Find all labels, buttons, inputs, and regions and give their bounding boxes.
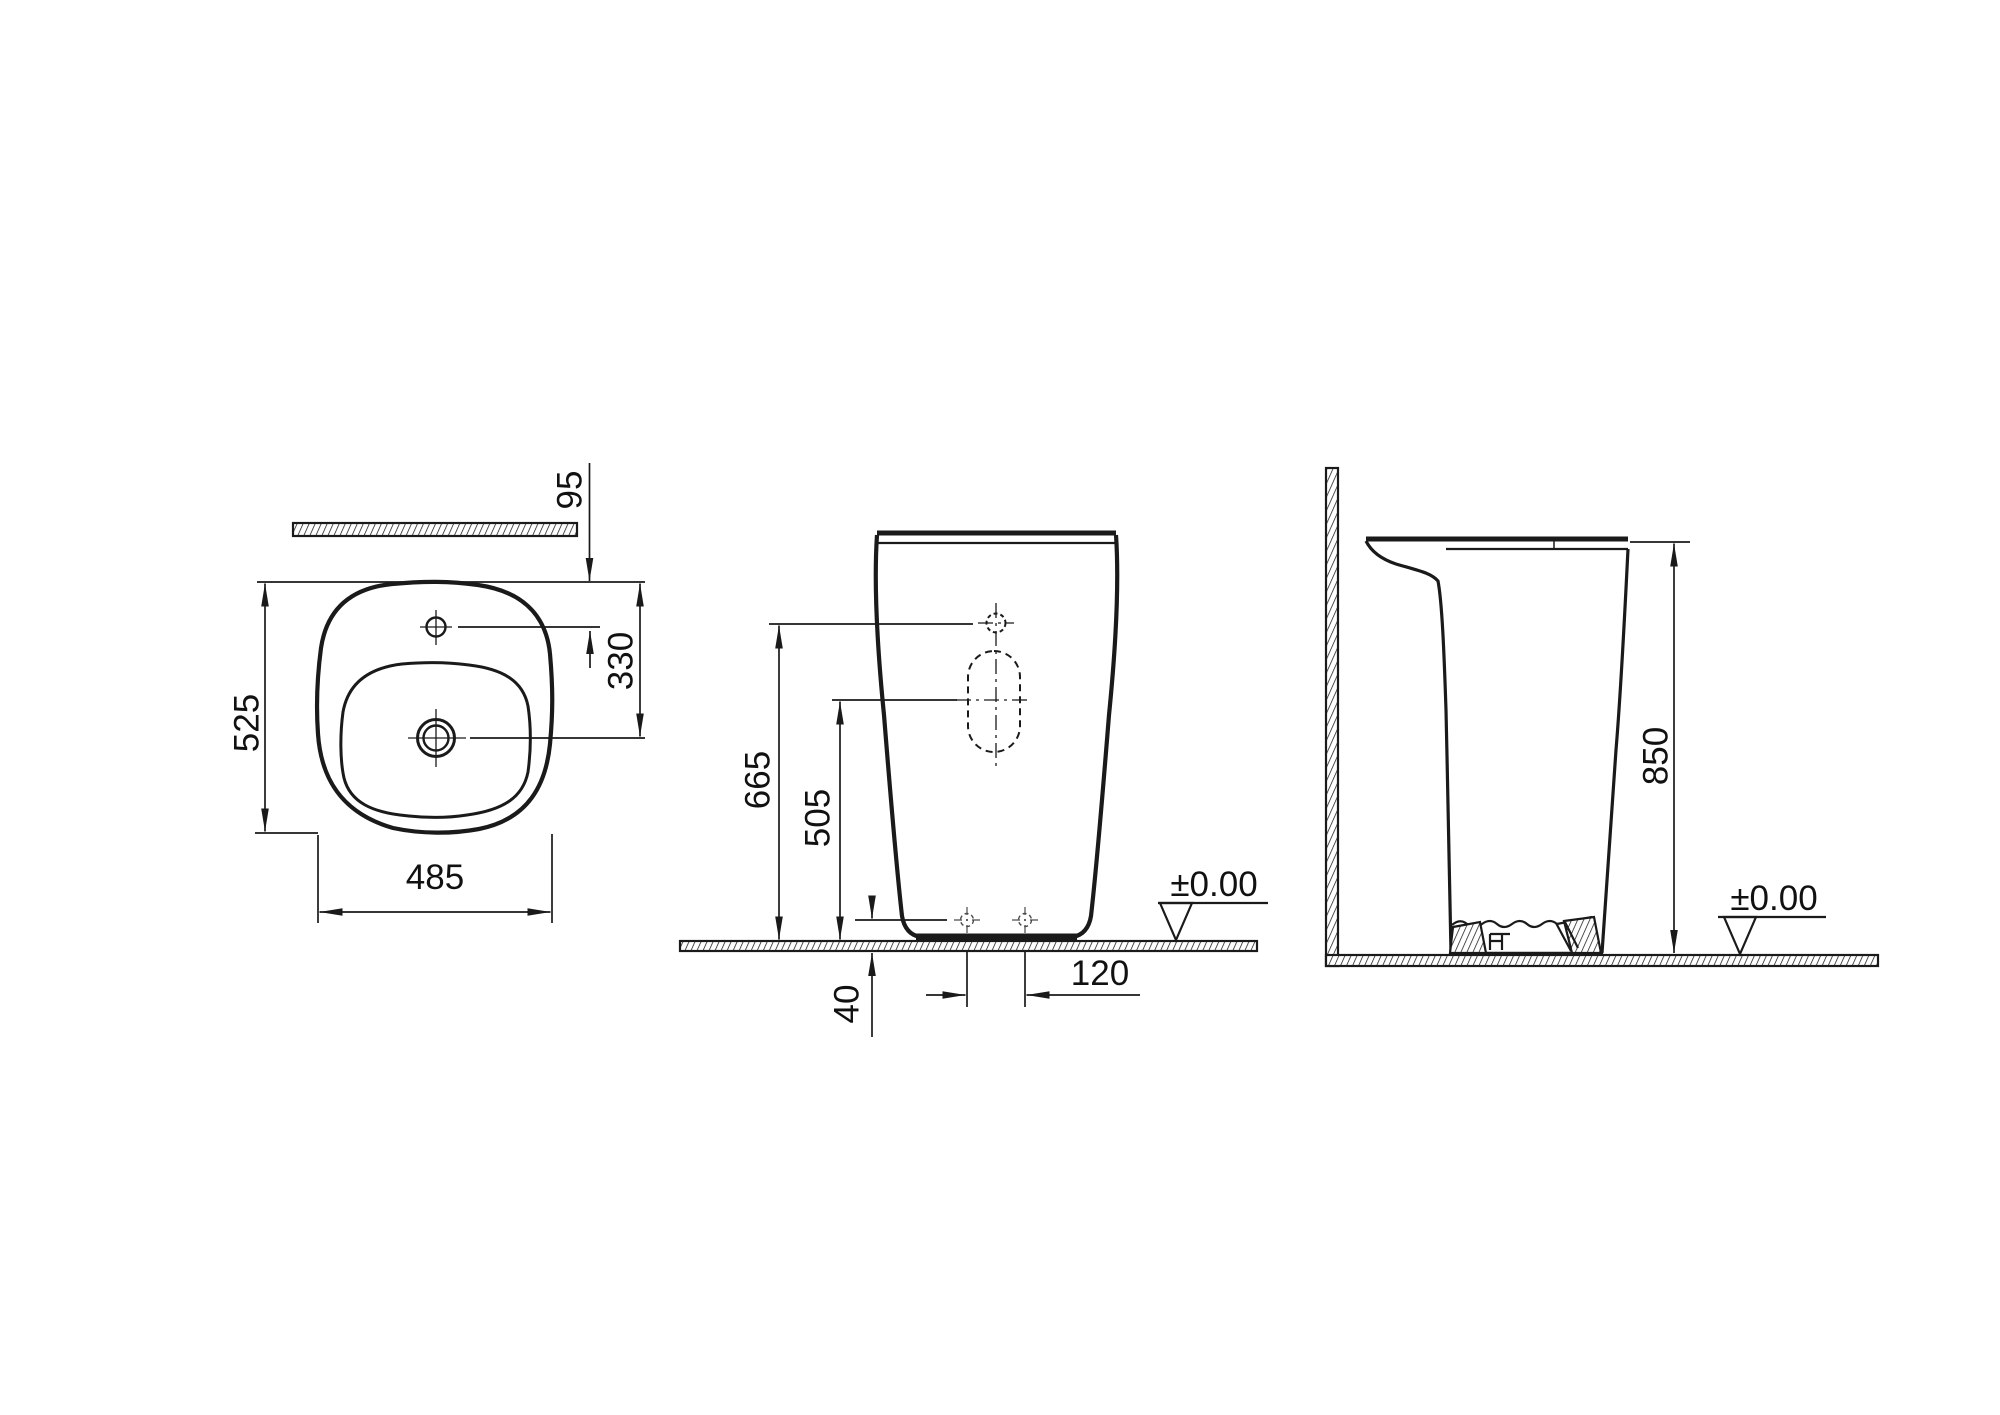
- fixing-hole-mark-left: [954, 907, 980, 933]
- front-datum-label: ±0.00: [1170, 865, 1257, 904]
- dim-overall-depth: 525: [227, 584, 318, 834]
- dim-label-525: 525: [227, 694, 266, 752]
- side-wall-section: [1326, 468, 1338, 966]
- side-datum-level: ±0.00: [1718, 879, 1826, 954]
- dim-overall-width: 485: [318, 834, 552, 923]
- side-base-section-detail: [1450, 917, 1601, 953]
- side-elevation: 850 ±0.00: [1326, 468, 1878, 966]
- front-datum-level: ±0.00: [1158, 865, 1268, 940]
- dim-tap-height: 665: [738, 624, 973, 940]
- dim-label-95: 95: [550, 471, 589, 510]
- front-drain-oval-hidden: [956, 651, 1032, 752]
- washbasin-technical-drawing: 95 330: [0, 0, 2000, 1415]
- dim-label-330: 330: [601, 632, 640, 690]
- side-floor-section: [1326, 955, 1878, 966]
- front-floor-section: [680, 941, 1257, 951]
- dim-drain-height: 505: [798, 700, 957, 940]
- datum-triangle-icon: [1160, 903, 1192, 940]
- dim-wall-clearance: 95: [550, 463, 590, 668]
- dim-overall-height: 850: [1630, 542, 1690, 953]
- plan-wall-section: [293, 523, 577, 536]
- dim-rim-to-drain: 330: [601, 584, 640, 737]
- side-datum-label: ±0.00: [1730, 879, 1817, 918]
- base-section-hatch-left: [1450, 922, 1486, 953]
- front-elevation: 665 505 40 120 ±0.00: [680, 533, 1268, 1037]
- datum-triangle-icon: [1724, 917, 1756, 954]
- front-tap-hole-hidden: [978, 603, 1014, 770]
- dim-fixing-spacing: 120: [926, 952, 1140, 1007]
- dim-label-485: 485: [406, 858, 464, 897]
- tap-hole: [420, 610, 600, 645]
- drawing-canvas: 95 330: [0, 0, 2000, 1415]
- side-vessel-outline: [1366, 539, 1628, 953]
- plan-view: 95 330: [227, 463, 645, 923]
- dim-label-120: 120: [1071, 954, 1129, 993]
- drain-hole: [408, 709, 645, 767]
- dim-label-665: 665: [738, 751, 777, 809]
- dim-label-850: 850: [1636, 727, 1675, 785]
- dim-base-recess: 40: [827, 896, 872, 1037]
- fixing-hole-mark-right: [1012, 907, 1038, 933]
- dim-label-505: 505: [798, 789, 837, 847]
- dim-label-40: 40: [827, 985, 866, 1024]
